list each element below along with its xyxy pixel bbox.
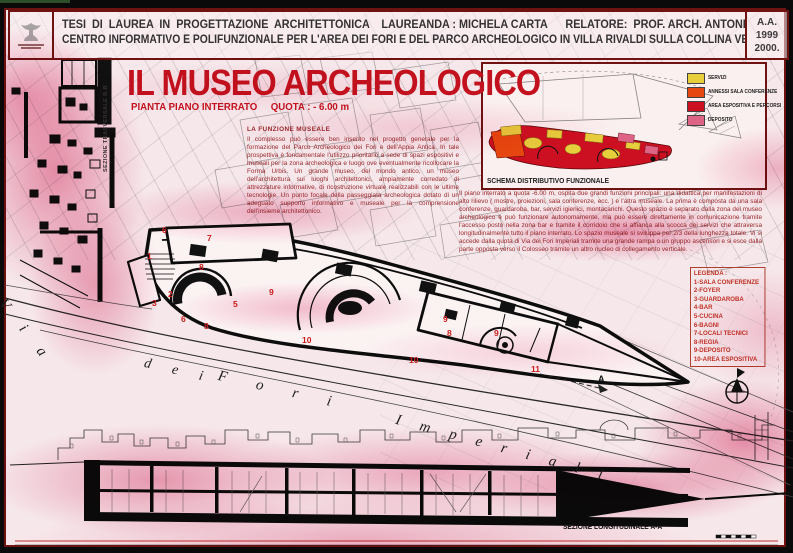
room-number: 8 xyxy=(447,328,452,338)
section-marker-a: A xyxy=(598,374,605,384)
legend-label: ANNESSI SALA CONFERENZE xyxy=(708,89,777,95)
legend-item: 5-CUCINA xyxy=(694,313,765,322)
room-number: 10 xyxy=(302,335,311,345)
legend-label: AREA ESPOSITIVA E PERCORSI xyxy=(708,103,781,109)
logo-caption-line xyxy=(18,44,44,46)
legend-item: 4-BAR xyxy=(694,304,765,313)
room-number: 9 xyxy=(443,314,448,324)
legend-item: 2-FOYER xyxy=(694,287,765,296)
legend-item: 6-BAGNI xyxy=(694,322,765,331)
intro-paragraph: LA FUNZIONE MUSEALE Il complesso può ess… xyxy=(247,126,459,216)
room-number: 1 xyxy=(147,251,152,261)
room-number: 9 xyxy=(494,328,499,338)
legend-swatch-servizi xyxy=(687,73,705,84)
page-title: IL MUSEO ARCHEOLOGICO xyxy=(127,62,540,104)
legend-label: SERVIZI xyxy=(708,75,726,81)
poster-scan: TESI DI LAUREA IN PROGETTAZIONE ARCHITET… xyxy=(0,0,793,553)
intro-body: Il complesso può essere ben inserito nel… xyxy=(247,136,459,216)
university-logo xyxy=(10,12,54,58)
year-2000: 2000. xyxy=(754,42,779,55)
thesis-line-1: TESI DI LAUREA IN PROGETTAZIONE ARCHITET… xyxy=(62,17,671,31)
intro-heading: LA FUNZIONE MUSEALE xyxy=(247,126,459,134)
legend-item: 3-GUARDAROBA xyxy=(694,296,765,305)
compass-icon xyxy=(726,368,748,403)
transverse-section-drawing xyxy=(12,58,115,308)
legend-item: 10-AREA ESPOSITIVA xyxy=(694,356,765,365)
legend-item: 1-SALA CONFERENZE xyxy=(694,279,765,288)
legend-swatch-annessi xyxy=(687,87,705,98)
section-label-longitudinal: SEZIONE LONGITUDINALE A-A xyxy=(563,524,662,531)
section-label-transversal: SEZIONE TRASVERSALE B-B xyxy=(103,85,109,172)
title-block: TESI DI LAUREA IN PROGETTAZIONE ARCHITET… xyxy=(8,10,789,60)
university-crest-icon xyxy=(18,21,44,43)
room-number: 10 xyxy=(409,355,418,365)
scale-bar xyxy=(716,535,756,538)
room-number: 3 xyxy=(152,298,157,308)
room-number: 5 xyxy=(233,299,238,309)
year-aa: A.A. xyxy=(757,16,777,29)
legend-item: 8-REGIA xyxy=(694,339,765,348)
legend-panel: LEGENDA : 1-SALA CONFERENZE 2-FOYER 3-GU… xyxy=(690,267,765,367)
room-number: 6 xyxy=(181,314,186,324)
room-number: 9 xyxy=(269,287,274,297)
scheme-caption: SCHEMA DISTRIBUTIVO FUNZIONALE xyxy=(487,178,609,185)
thesis-heading: TESI DI LAUREA IN PROGETTAZIONE ARCHITET… xyxy=(54,12,745,58)
year-1999: 1999 xyxy=(756,29,778,42)
room-number: 7 xyxy=(207,233,212,243)
scheme-legend-row: DEPOSITO xyxy=(687,115,734,125)
academic-year: A.A. 1999 2000. xyxy=(745,12,787,58)
logo-caption-line xyxy=(21,47,41,49)
thesis-line-2: CENTRO INFORMATIVO E POLIFUNZIONALE PER … xyxy=(62,34,671,46)
scheme-legend-row: AREA ESPOSITIVA E PERCORSI xyxy=(687,101,785,111)
scheme-legend-row: SERVIZI xyxy=(687,73,727,83)
room-number: 11 xyxy=(531,364,540,374)
legend-title: LEGENDA : xyxy=(694,270,765,279)
legend-item: 7-LOCALI TECNICI xyxy=(694,330,765,339)
room-number: 6 xyxy=(162,225,167,235)
scheme-legend-row: ANNESSI SALA CONFERENZE xyxy=(687,87,781,97)
legend-swatch-espositiva xyxy=(687,101,705,112)
room-number: 2 xyxy=(168,289,173,299)
description-paragraph: Il piano interrato a quota -6.00 m, ospi… xyxy=(459,190,762,254)
legend-label: DEPOSITO xyxy=(708,117,732,123)
page-subtitle: PIANTA PIANO INTERRATO QUOTA : - 6.00 m xyxy=(131,101,349,113)
legend-item: 9-DEPOSITO xyxy=(694,347,765,356)
legend-swatch-deposito xyxy=(687,115,705,126)
longitudinal-section-drawing xyxy=(10,412,790,545)
room-number: 8 xyxy=(204,321,209,331)
scan-artifact xyxy=(0,0,70,3)
room-number: 8 xyxy=(199,262,204,272)
